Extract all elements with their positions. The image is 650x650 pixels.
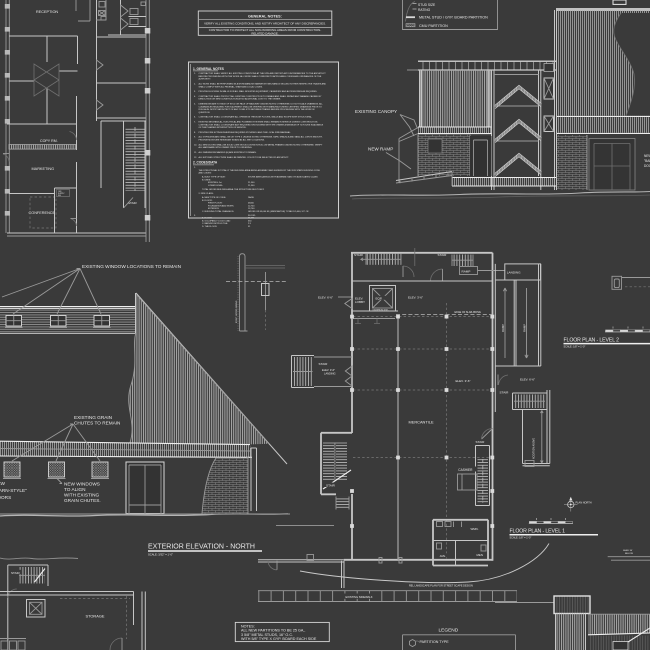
svg-text:ALL WORK SHALL BE PERFORMED IN: ALL WORK SHALL BE PERFORMED IN A WORKMAN…	[199, 83, 327, 86]
svg-text:ELEV. 6'-6": ELEV. 6'-6"	[318, 295, 333, 299]
svg-text:OF THE PLANNED INTERRUPTION OF: OF THE PLANNED INTERRUPTION OF SERVICE.	[199, 126, 247, 129]
svg-text:NEW: NEW	[644, 154, 650, 158]
svg-text:TOTAL GROSS BUILDING AREA: THE: TOTAL GROSS BUILDING AREA: THE STRUCTURE…	[202, 188, 265, 191]
svg-text:EXISTING GRAIN: EXISTING GRAIN	[74, 415, 112, 420]
svg-text:RELATED DAMAGE.: RELATED DAMAGE.	[251, 32, 278, 36]
svg-text:EXISTING SIDEWALK: EXISTING SIDEWALK	[346, 595, 373, 599]
svg-text:GRAIN CHUTES.: GRAIN CHUTES.	[64, 498, 101, 503]
svg-text:CONFERENCE: CONFERENCE	[29, 211, 56, 215]
svg-text:CONTRACTOR SHALL VERIFY ALL EX: CONTRACTOR SHALL VERIFY ALL EXISTING CON…	[199, 72, 327, 75]
svg-text:LANDING: LANDING	[324, 372, 336, 376]
svg-text:FLOOR:: FLOOR:	[248, 215, 256, 217]
svg-text:BELOW: BELOW	[625, 553, 634, 555]
svg-text:MEN: MEN	[477, 553, 483, 557]
svg-text:RAMP: RAMP	[522, 324, 526, 332]
svg-text:B. FLOOR:: B. FLOOR:	[202, 200, 213, 202]
svg-text:SHALL COMPLY WITH ALL FEDERAL,: SHALL COMPLY WITH ALL FEDERAL, STATE AND…	[199, 85, 263, 88]
svg-text:ELEV. 6'-6": ELEV. 6'-6"	[520, 377, 535, 381]
svg-text:STAIR: STAIR	[326, 484, 336, 488]
svg-text:2A/3B: 2A/3B	[248, 196, 254, 199]
svg-text:CMU PARTITION: CMU PARTITION	[419, 24, 448, 28]
svg-text:EXTERIOR:: EXTERIOR:	[208, 208, 220, 210]
svg-text:B. OCCUPANCY LOCK LOAD:: B. OCCUPANCY LOCK LOAD:	[202, 219, 231, 222]
svg-text:ELEV. 3'-6": ELEV. 3'-6"	[408, 295, 423, 299]
svg-text:STAIR: STAIR	[354, 253, 364, 257]
svg-text:AUTHORITY.: AUTHORITY.	[199, 78, 212, 81]
svg-text:NEW: NEW	[0, 481, 6, 486]
svg-text:GROSS OR 65,000 SF, (MERCANTIL: GROSS OR 65,000 SF, (MERCANTILE) TOTAL I…	[248, 210, 309, 213]
svg-text:FOUNDATION AND WORK:: FOUNDATION AND WORK:	[208, 204, 234, 207]
svg-text:VERIFY ALL EXISTING CONDITIONS: VERIFY ALL EXISTING CONDITIONS, AND NOTI…	[204, 22, 326, 26]
svg-text:ADDITION ABOVE: ADDITION ABOVE	[533, 438, 536, 459]
svg-text:EXISTING WINDOW LOCATIONS TO R: EXISTING WINDOW LOCATIONS TO REMAIN	[82, 264, 181, 269]
svg-text:DEMOLITION OR NEW CONSTRUCTION: DEMOLITION OR NEW CONSTRUCTION AT NO ADD…	[199, 98, 282, 101]
svg-text:12,700: 12,700	[248, 205, 255, 207]
svg-text:JAN.: JAN.	[440, 554, 446, 558]
svg-text:WITH EXISTING: WITH EXISTING	[64, 493, 100, 498]
svg-text:AND CODES:: AND CODES:	[199, 172, 212, 175]
svg-text:2. CODES/DATA: 2. CODES/DATA	[193, 161, 218, 165]
svg-text:10.: 10.	[194, 144, 197, 146]
svg-text:NEW RAMP: NEW RAMP	[368, 147, 393, 152]
svg-text:DIMENSIONS ARE TO FACE OF STUD: DIMENSIONS ARE TO FACE OF STUD OR FACE O…	[199, 103, 324, 106]
svg-text:STAIR: STAIR	[476, 440, 486, 444]
svg-text:CONTRACTOR SHALL COORDINATE AL: CONTRACTOR SHALL COORDINATE ALL OPENINGS…	[199, 116, 313, 119]
svg-text:CONTRACTOR SHALL PROTECT ALL E: CONTRACTOR SHALL PROTECT ALL EXISTING CO…	[199, 95, 322, 98]
svg-text:FLOOR PLAN - LEVEL 2: FLOOR PLAN - LEVEL 2	[564, 338, 620, 344]
svg-text:ELEV. 3'-6": ELEV. 3'-6"	[322, 368, 335, 372]
svg-text:LOWER LEVEL:: LOWER LEVEL:	[208, 185, 224, 187]
svg-text:"BARN-STYLE": "BARN-STYLE"	[0, 488, 27, 493]
svg-text:STAIR: STAIR	[319, 362, 329, 366]
svg-text:1. GENERAL NOTES: 1. GENERAL NOTES	[193, 67, 224, 71]
svg-text:ALL GYPSUM BOARD SHALL BE 5/8": ALL GYPSUM BOARD SHALL BE 5/8" TYPE X UN…	[199, 136, 324, 139]
svg-text:NEW WINDOWS: NEW WINDOWS	[64, 482, 100, 487]
svg-text:FIRST FLOOR:: FIRST FLOOR:	[208, 203, 223, 205]
svg-text:PROVIDE MOISTURE RESISTANT BOA: PROVIDE MOISTURE RESISTANT BOARD AT ALL …	[199, 139, 266, 142]
svg-text:REL LANDSCAPE PLAN FOR STREET: REL LANDSCAPE PLAN FOR STREET SCAPE DESI…	[409, 585, 473, 588]
svg-text:WMN.: WMN.	[471, 527, 479, 531]
svg-text:C. BATHROOM PLUS THE:: C. BATHROOM PLUS THE:	[202, 222, 228, 225]
svg-text:EQP.: EQP.	[376, 296, 383, 300]
svg-text:GENERAL NOTES:: GENERAL NOTES:	[248, 15, 282, 19]
svg-text:"BAR: "BAR	[644, 159, 650, 163]
svg-text:WITH 5/8" TYPE X GYP. BOARD EA: WITH 5/8" TYPE X GYP. BOARD EACH SIDE	[241, 637, 317, 641]
svg-text:THE STRUCTURAL IS TOTALLY THE: THE STRUCTURAL IS TOTALLY THE BUILDING A…	[199, 169, 321, 172]
svg-text:PROVIDE BLOCKING IN WALLS FOR: PROVIDE BLOCKING IN WALLS FOR ALL WALL M…	[199, 90, 318, 93]
svg-text:SCALE: 1/8" = 1'-0": SCALE: 1/8" = 1'-0"	[510, 537, 532, 540]
svg-text:DOO: DOO	[644, 164, 650, 168]
svg-text:CLEARANCES REQUIRED FOR EQUIPM: CLEARANCES REQUIRED FOR EQUIPMENT SHALL …	[199, 105, 323, 108]
svg-text:LANDING: LANDING	[507, 270, 521, 274]
svg-text:RM.: RM.	[58, 195, 62, 197]
svg-text:EXISTING MECHANICAL, ELECTRICA: EXISTING MECHANICAL, ELECTRICAL AND PLUM…	[199, 121, 319, 124]
svg-text:STAIR: STAIR	[438, 253, 448, 257]
svg-text:FLOOR PLAN - LEVEL 1: FLOOR PLAN - LEVEL 1	[510, 529, 566, 535]
svg-text:ELEV. 3'-6": ELEV. 3'-6"	[456, 379, 471, 383]
svg-text:EXIST. WOOD SIDING: EXIST. WOOD SIDING	[236, 300, 238, 323]
svg-text:ALL EXPOSED STRUCTURE SHALL BE: ALL EXPOSED STRUCTURE SHALL BE PAINTED. …	[199, 156, 290, 159]
svg-text:11.: 11.	[194, 152, 197, 154]
svg-text:13,700: 13,700	[248, 208, 255, 210]
svg-text:26,671: 26,671	[248, 218, 255, 220]
svg-text:MARKETING: MARKETING	[32, 167, 55, 171]
svg-text:EXISTING CANOPY: EXISTING CANOPY	[355, 109, 397, 114]
svg-text:TO ALIGN: TO ALIGN	[64, 487, 86, 492]
svg-text:C. BUILDING TOTAL CHANGE IS:: C. BUILDING TOTAL CHANGE IS:	[202, 210, 234, 213]
svg-text:CONTRACTOR SHALL COORDINATE AN: CONTRACTOR SHALL COORDINATE ANY REQUIRED…	[199, 123, 324, 126]
svg-text:21,500: 21,500	[248, 182, 255, 184]
svg-text:A. NEW TYPE OF CODE:: A. NEW TYPE OF CODE:	[202, 196, 226, 199]
svg-text:EDGE OF SLAB ABOVE: EDGE OF SLAB ABOVE	[455, 311, 482, 314]
svg-text:QUESTION.: QUESTION.	[199, 112, 211, 114]
svg-text:ALL HARDWARE WITH OWNER PRIOR: ALL HARDWARE WITH OWNER PRIOR TO ORDERIN…	[199, 146, 253, 149]
svg-text:RAMP: RAMP	[462, 270, 471, 274]
svg-text:PARTITION TYPE: PARTITION TYPE	[420, 640, 450, 644]
svg-text:METAL STUD / GYP. BOARD PARTIT: METAL STUD / GYP. BOARD PARTITION	[419, 16, 488, 20]
svg-text:SCALE: 3/32" = 1'-0": SCALE: 3/32" = 1'-0"	[148, 553, 173, 557]
svg-text:STORE (MERCANTILE) WITH ASSEMB: STORE (MERCANTILE) WITH ASSEMBLY AND ITS…	[248, 176, 318, 179]
svg-text:D. THE FLOOR:: D. THE FLOOR:	[202, 226, 218, 228]
svg-text:46000: 46000	[248, 203, 255, 205]
svg-text:MERCANTILE: MERCANTILE	[409, 419, 434, 424]
svg-text:SCALE: 1/8" = 1'-0": SCALE: 1/8" = 1'-0"	[564, 345, 586, 348]
svg-text:ALL DIMENSIONS MARKED (E) ARE: ALL DIMENSIONS MARKED (E) ARE EXISTING T…	[199, 151, 257, 154]
svg-text:PLAN NORTH: PLAN NORTH	[576, 502, 592, 505]
svg-text:CASHIER: CASHIER	[458, 468, 473, 472]
svg-text:2. FIRE CLASS:: 2. FIRE CLASS:	[199, 192, 214, 195]
svg-text:RATING: RATING	[418, 8, 431, 12]
svg-text:A. FLOOR:: A. FLOOR:	[202, 217, 213, 220]
svg-text:ALL NEW DOORS SHALL BE SOLID C: ALL NEW DOORS SHALL BE SOLID CORE WOOD D…	[199, 143, 323, 146]
svg-text:LOBBY: LOBBY	[355, 300, 365, 304]
svg-text:SHED 30': SHED 30'	[623, 550, 633, 552]
svg-text:PROVIDE FIRE EXTINGUISHERS AS: PROVIDE FIRE EXTINGUISHERS AS REQUIRED B…	[199, 131, 292, 134]
svg-text:DOORS: DOORS	[0, 495, 11, 500]
svg-text:ROUGH-IN. NOTIFY ARCHITECT OF: ROUGH-IN. NOTIFY ARCHITECT OF ANY CONFLI…	[199, 108, 315, 111]
svg-text:21,500: 21,500	[248, 185, 255, 187]
svg-text:STUD SIZE: STUD SIZE	[418, 3, 436, 7]
svg-text:CHUTES TO REMAIN: CHUTES TO REMAIN	[74, 420, 120, 425]
svg-text:RECEPTION: RECEPTION	[36, 10, 58, 14]
svg-text:LEGEND: LEGEND	[439, 628, 459, 634]
svg-text:A. BUILT TYPE OF SIZE:: A. BUILT TYPE OF SIZE:	[202, 176, 226, 179]
svg-text:STAIR: STAIR	[500, 390, 510, 394]
svg-text:RAMP: RAMP	[501, 324, 505, 332]
svg-text:STORAGE: STORAGE	[86, 613, 105, 618]
svg-text:COPY RM.: COPY RM.	[40, 139, 58, 143]
svg-text:12.: 12.	[194, 157, 197, 159]
svg-text:B. USES:: B. USES:	[202, 179, 211, 181]
svg-text:BEFORE PROCEEDING WITH THE WOR: BEFORE PROCEEDING WITH THE WORK. ALL WOR…	[199, 75, 322, 78]
svg-text:STAIR: STAIR	[11, 571, 20, 575]
svg-text:EXTERIOR ELEVATION - NORTH: EXTERIOR ELEVATION - NORTH	[148, 544, 255, 551]
svg-text:EXISTING: 1st: EXISTING: 1st	[208, 181, 222, 184]
